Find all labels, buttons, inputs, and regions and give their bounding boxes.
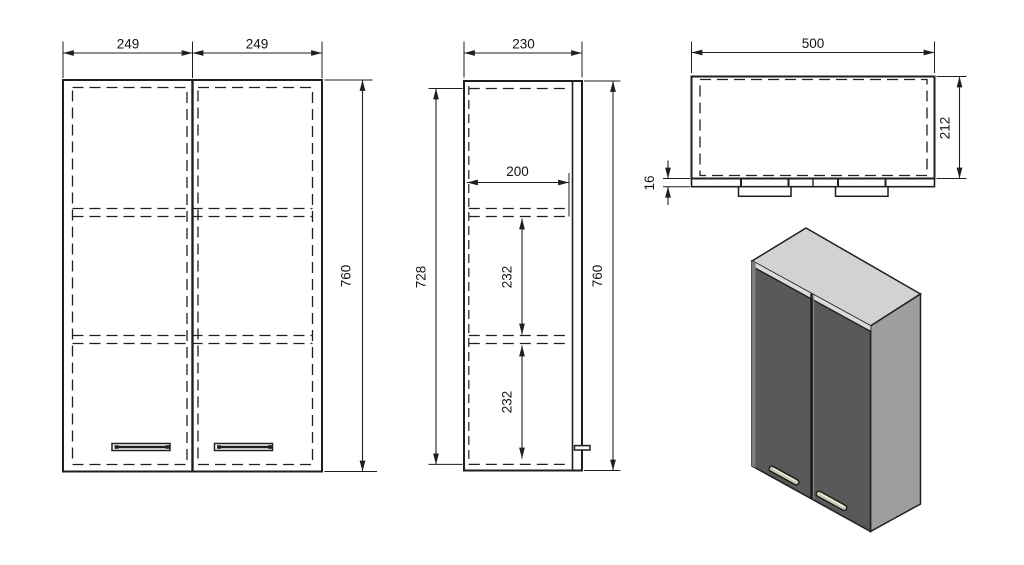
side-view: 230 200 232 232 728 760 bbox=[414, 37, 621, 471]
dim-side-upper-shelf-gap: 232 bbox=[500, 266, 515, 289]
top-left-door-handle bbox=[739, 179, 792, 196]
top-right-door-handle bbox=[836, 179, 889, 196]
front-right-door-dashed bbox=[198, 88, 313, 465]
top-cabinet-outline bbox=[692, 77, 935, 179]
front-left-door-dashed bbox=[73, 88, 188, 465]
dim-top-door-thickness: 16 bbox=[642, 175, 657, 190]
dim-side-inner-depth: 200 bbox=[506, 164, 529, 179]
technical-drawing-page: 249 249 760 230 200 232 232 bbox=[0, 0, 1024, 565]
front-view: 249 249 760 bbox=[63, 37, 377, 472]
isometric-view bbox=[752, 228, 921, 532]
side-door-handle bbox=[575, 446, 591, 450]
dim-top-width: 500 bbox=[802, 36, 825, 51]
dim-front-height: 760 bbox=[339, 265, 354, 288]
top-view: 500 212 16 bbox=[642, 36, 967, 205]
dim-front-door-width-right: 249 bbox=[246, 37, 269, 52]
iso-left-edge-strip bbox=[752, 261, 756, 468]
dim-top-depth: 212 bbox=[938, 117, 953, 140]
dim-side-height: 760 bbox=[590, 265, 605, 288]
front-left-door-handle bbox=[112, 444, 170, 451]
dim-side-depth: 230 bbox=[512, 37, 535, 52]
dim-side-lower-shelf-gap: 232 bbox=[500, 391, 515, 414]
dim-front-door-width-left: 249 bbox=[117, 37, 140, 52]
dim-side-inner-height: 728 bbox=[414, 266, 429, 289]
top-interior-dashed bbox=[700, 80, 927, 176]
technical-drawing-canvas: 249 249 760 230 200 232 232 bbox=[0, 0, 1024, 565]
front-right-door-handle bbox=[215, 444, 273, 451]
iso-right-face bbox=[871, 294, 921, 532]
side-cabinet-outline bbox=[464, 81, 582, 471]
